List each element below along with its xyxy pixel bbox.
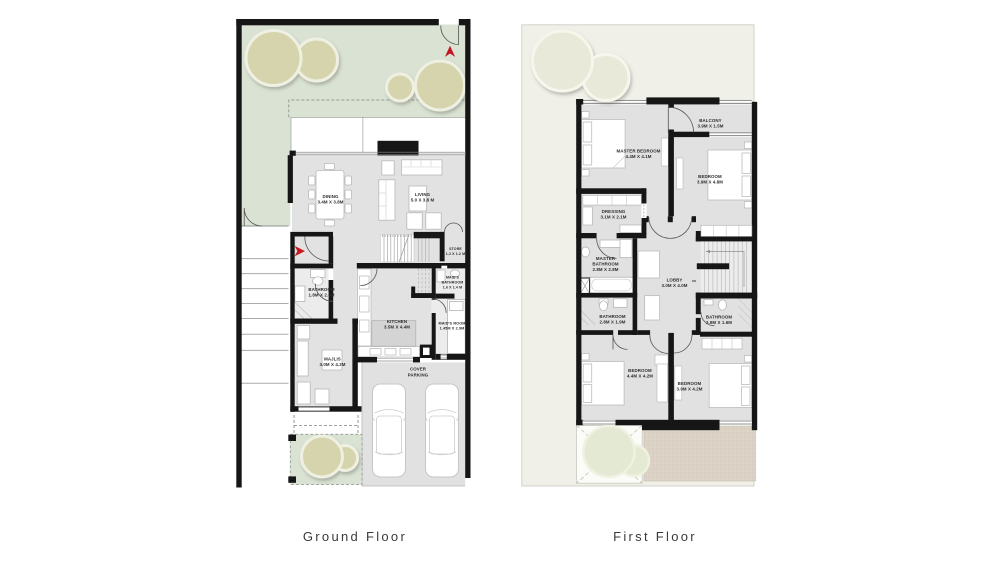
svg-text:COVER: COVER <box>410 367 427 372</box>
svg-text:2.8M X 2.8M: 2.8M X 2.8M <box>593 267 619 272</box>
svg-text:1.8M X 2.5M: 1.8M X 2.5M <box>309 293 335 298</box>
svg-text:BATHROOM: BATHROOM <box>592 262 619 267</box>
svg-text:BEDROOM: BEDROOM <box>628 368 652 373</box>
svg-text:BATHROOM: BATHROOM <box>599 314 626 319</box>
svg-text:BATHROOM: BATHROOM <box>706 315 733 320</box>
svg-text:5.0 X 3.8 M: 5.0 X 3.8 M <box>411 198 435 203</box>
svg-text:DINING: DINING <box>323 194 339 199</box>
svg-text:Ground Floor: Ground Floor <box>303 529 407 544</box>
svg-text:BEDROOM: BEDROOM <box>698 174 722 179</box>
svg-text:PARKING: PARKING <box>408 373 429 378</box>
svg-text:LIVING: LIVING <box>415 192 431 197</box>
svg-text:3.4M X 3.8M: 3.4M X 3.8M <box>318 200 344 205</box>
svg-text:4.4M X 4.1M: 4.4M X 4.1M <box>626 154 652 159</box>
svg-text:MAJLIS: MAJLIS <box>324 357 341 362</box>
svg-text:DN: DN <box>692 279 696 283</box>
svg-text:BEDROOM: BEDROOM <box>678 381 702 386</box>
svg-text:KITCHEN: KITCHEN <box>387 319 407 324</box>
svg-text:MASTER: MASTER <box>596 256 616 261</box>
svg-text:MAID'S ROOM: MAID'S ROOM <box>438 322 465 326</box>
svg-text:MAID'S: MAID'S <box>446 276 460 280</box>
svg-text:1.6 X 1.4 M: 1.6 X 1.4 M <box>443 286 462 290</box>
svg-text:4.4M X 4.2M: 4.4M X 4.2M <box>627 374 653 379</box>
svg-text:3.9M X 1.5M: 3.9M X 1.5M <box>698 124 724 129</box>
svg-text:3.5M X 4.4M: 3.5M X 4.4M <box>384 325 410 330</box>
svg-text:1.2 X 1.2 M: 1.2 X 1.2 M <box>446 252 465 256</box>
svg-text:MASTER BEDROOM: MASTER BEDROOM <box>616 149 660 154</box>
svg-text:BATHROOM: BATHROOM <box>308 287 335 292</box>
svg-text:3.9M X 4.8M: 3.9M X 4.8M <box>697 180 723 185</box>
svg-text:2.8M X 1.9M: 2.8M X 1.9M <box>600 320 626 325</box>
svg-text:First Floor: First Floor <box>613 529 697 544</box>
svg-text:3.0M X 4.0M: 3.0M X 4.0M <box>662 283 688 288</box>
svg-text:1.45M X 2.9M: 1.45M X 2.9M <box>440 327 465 331</box>
svg-text:STORE: STORE <box>449 247 462 251</box>
svg-text:BALCONY: BALCONY <box>699 118 721 123</box>
svg-text:LOBBY: LOBBY <box>667 278 683 283</box>
svg-text:3.1M X 2.1M: 3.1M X 2.1M <box>601 215 627 220</box>
svg-text:DRESSING: DRESSING <box>602 209 626 214</box>
svg-text:3.0M X 4.2M: 3.0M X 4.2M <box>320 362 346 367</box>
svg-text:3.9M X 4.2M: 3.9M X 4.2M <box>677 387 703 392</box>
svg-text:2.9M X 1.6M: 2.9M X 1.6M <box>706 320 732 325</box>
svg-text:BATHROOM: BATHROOM <box>442 281 464 285</box>
